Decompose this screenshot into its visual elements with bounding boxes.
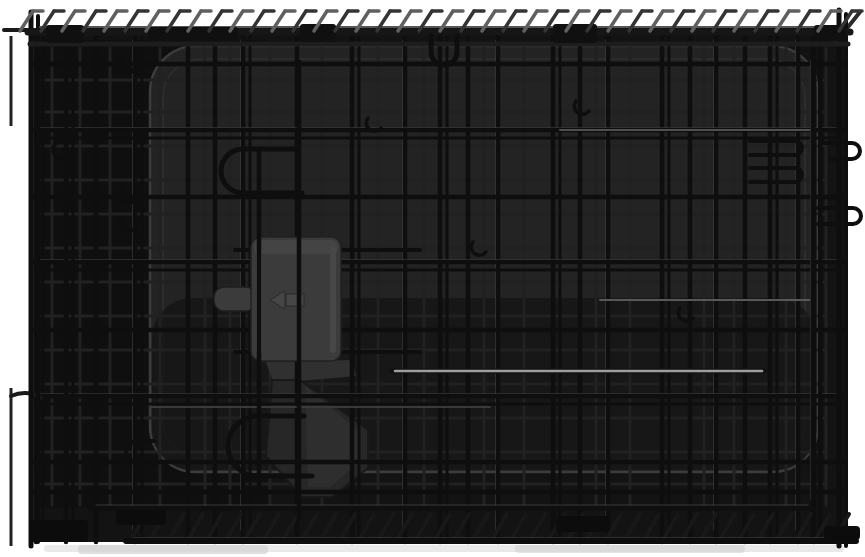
corner-foot [556,516,610,532]
latch-emboss-bar [286,294,304,306]
product-photo-dog-crate [0,0,865,557]
latch-top-bevel [254,240,338,254]
rail-clamp [148,27,238,41]
corner-foot [30,520,88,542]
latch-ridge-right [330,247,336,353]
shadow-center [515,545,745,553]
scene-canvas [0,0,865,557]
corner-foot [824,526,860,540]
shadow-left [78,545,268,554]
latch-release-tab [214,287,256,311]
corner-foot [116,510,166,525]
